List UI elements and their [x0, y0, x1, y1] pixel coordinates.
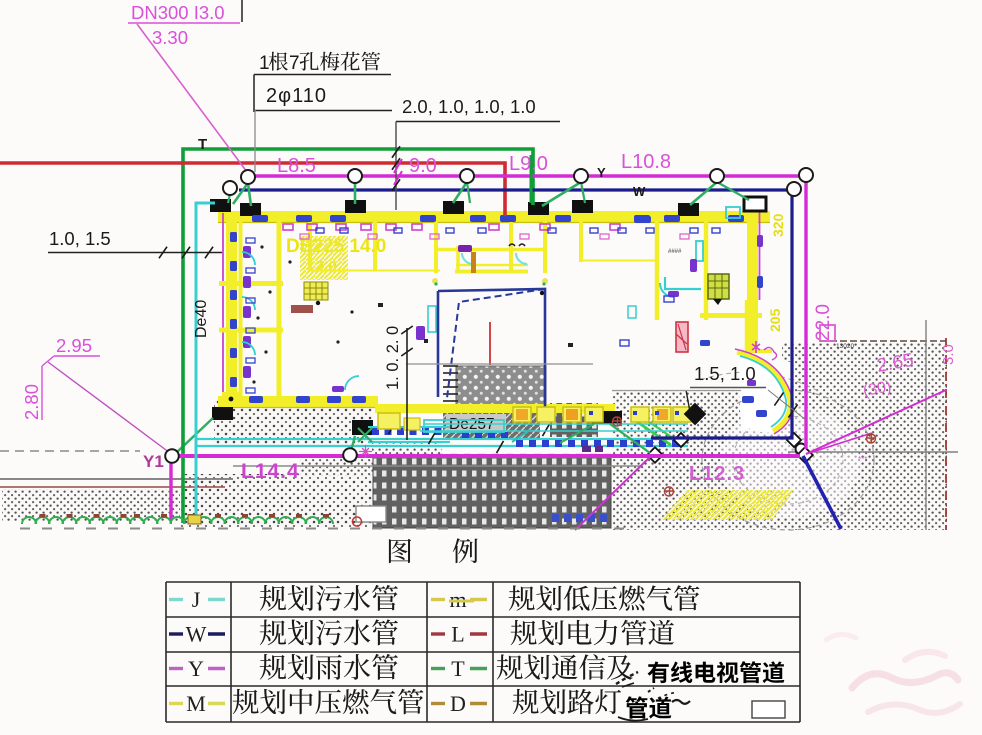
svg-text:M: M	[186, 691, 206, 716]
svg-text:2.95: 2.95	[56, 335, 92, 356]
svg-text:####: ####	[668, 249, 682, 255]
svg-text:Y1: Y1	[143, 452, 164, 471]
svg-text:13020: 13020	[836, 343, 854, 350]
svg-text:2.0, 1.0, 1.0, 1.0: 2.0, 1.0, 1.0, 1.0	[402, 96, 536, 117]
svg-text:L8.5: L8.5	[277, 155, 316, 177]
svg-text:320: 320	[770, 213, 786, 237]
svg-text:205: 205	[767, 308, 783, 332]
svg-text:J: J	[192, 587, 201, 612]
svg-text:L14.4: L14.4	[241, 460, 300, 483]
svg-text:L: L	[451, 622, 464, 647]
svg-text:2.80: 2.80	[21, 384, 42, 420]
svg-text:1.0, 1.5: 1.0, 1.5	[49, 228, 111, 249]
svg-text:De40: De40	[193, 300, 210, 338]
svg-text:22.0: 22.0	[813, 304, 834, 341]
svg-text:T: T	[451, 656, 465, 681]
svg-text:Y: Y	[597, 165, 606, 180]
svg-text:7: 7	[289, 53, 300, 74]
svg-text:L9.0: L9.0	[509, 153, 548, 175]
svg-text:1.5, 1.0: 1.5, 1.0	[694, 363, 756, 384]
svg-text:3.0: 3.0	[940, 344, 957, 365]
svg-text:9.0: 9.0	[409, 155, 437, 177]
svg-text:3.30: 3.30	[152, 27, 188, 48]
svg-text:W: W	[633, 184, 646, 199]
svg-text:D: D	[450, 691, 466, 716]
svg-text:DN300 I3.0: DN300 I3.0	[131, 2, 225, 23]
svg-text:W: W	[186, 622, 207, 647]
svg-text:1: 1	[259, 53, 270, 74]
svg-text:***: ***	[858, 455, 867, 464]
svg-text:L10.8: L10.8	[621, 151, 671, 173]
svg-text:2φ110: 2φ110	[266, 85, 327, 107]
svg-text:L12.3: L12.3	[689, 463, 745, 485]
svg-text:Y: Y	[188, 656, 204, 681]
svg-text:1. 0. 2. 0: 1. 0. 2. 0	[384, 326, 402, 390]
svg-text:T: T	[198, 136, 207, 153]
